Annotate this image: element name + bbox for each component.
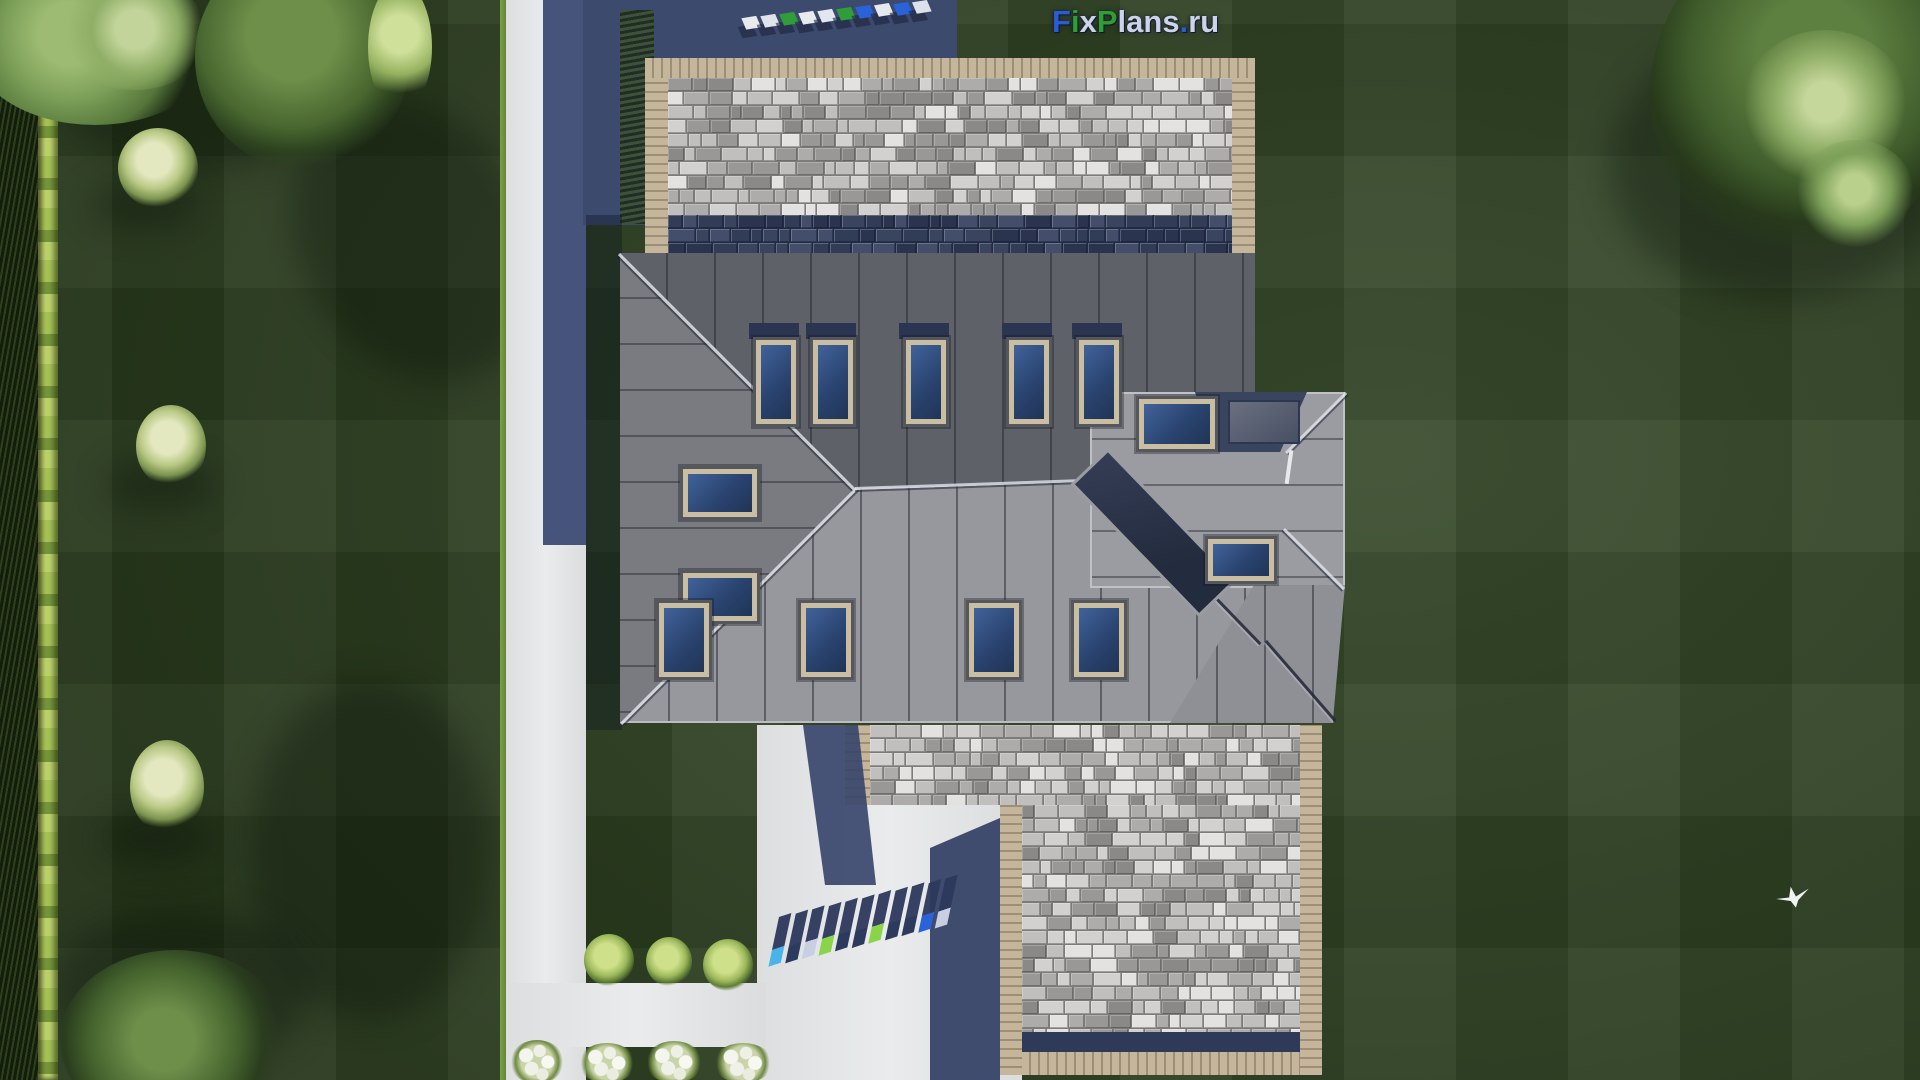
skylight-window bbox=[1006, 337, 1052, 427]
paver-tile bbox=[1227, 739, 1239, 752]
paver-tile bbox=[1180, 78, 1204, 91]
paver-tile bbox=[1005, 725, 1031, 738]
logo-letter: i bbox=[1071, 4, 1080, 39]
courtyard-pavers bbox=[870, 725, 1300, 805]
courtyard-pavers bbox=[668, 78, 1232, 215]
paver-tile bbox=[1061, 753, 1082, 766]
paver-tile bbox=[1035, 204, 1055, 215]
paver-tile bbox=[776, 243, 788, 253]
paver-tile bbox=[1221, 767, 1242, 780]
paver-tile bbox=[829, 215, 841, 228]
paver-tile bbox=[1091, 959, 1117, 972]
paver-tile bbox=[883, 215, 894, 228]
white-flower-bush-icon bbox=[578, 1043, 636, 1080]
skylight-window bbox=[680, 466, 760, 520]
paver-tile bbox=[1046, 767, 1065, 780]
paver-row bbox=[668, 204, 1232, 215]
paver-tile bbox=[1275, 833, 1289, 846]
paver-tile bbox=[909, 176, 925, 189]
paver-tile bbox=[785, 176, 812, 189]
paver-tile bbox=[989, 134, 1006, 147]
skylight-window bbox=[1205, 536, 1277, 584]
paver-row bbox=[870, 795, 1300, 805]
paver-tile bbox=[734, 78, 751, 91]
paver-tile bbox=[1137, 781, 1155, 794]
paver-tile bbox=[825, 162, 835, 175]
paver-tile bbox=[815, 148, 841, 161]
paver-tile bbox=[826, 106, 838, 119]
paver-tile bbox=[1274, 973, 1289, 986]
paver-tile bbox=[893, 795, 918, 805]
paver-tile bbox=[1251, 889, 1264, 902]
paver-tile bbox=[1206, 148, 1230, 161]
paver-tile bbox=[668, 243, 685, 253]
paver-tile bbox=[1204, 134, 1225, 147]
paver-tile bbox=[867, 106, 890, 119]
paver-tile bbox=[1086, 805, 1107, 818]
paver-tile bbox=[1069, 833, 1085, 846]
pale-bush-icon bbox=[136, 405, 206, 487]
paver-tile bbox=[1063, 847, 1076, 860]
paver-tile bbox=[1230, 945, 1243, 958]
courtyard-border bbox=[1022, 1052, 1300, 1075]
paver-tile bbox=[1129, 847, 1155, 860]
paver-tile bbox=[1091, 1001, 1107, 1014]
paver-tile bbox=[1041, 903, 1052, 916]
paver-tile bbox=[1169, 148, 1189, 161]
paver-tile bbox=[1132, 945, 1157, 958]
paver-tile bbox=[1208, 973, 1228, 986]
paver-tile bbox=[684, 92, 709, 105]
shaded-grass-strip bbox=[586, 215, 622, 730]
paver-tile bbox=[1074, 987, 1092, 1000]
paver-row bbox=[1022, 819, 1300, 832]
paver-tile bbox=[733, 92, 747, 105]
paver-tile bbox=[1036, 781, 1051, 794]
paver-tile bbox=[1092, 725, 1103, 738]
paver-tile bbox=[979, 243, 992, 253]
paver-tile bbox=[1045, 162, 1056, 175]
paver-tile bbox=[1240, 889, 1250, 902]
paver-tile bbox=[668, 162, 679, 175]
paver-tile bbox=[1189, 959, 1211, 972]
paver-tile bbox=[960, 781, 973, 794]
paver-tile bbox=[1173, 204, 1191, 215]
paver-tile bbox=[936, 781, 959, 794]
logo-letter: u bbox=[1200, 4, 1219, 39]
letter-block bbox=[836, 7, 856, 21]
skylight-window bbox=[798, 600, 854, 680]
paver-tile bbox=[804, 106, 825, 119]
paver-tile bbox=[1104, 931, 1127, 944]
paver-row bbox=[1022, 931, 1300, 944]
paver-tile bbox=[779, 229, 790, 242]
paver-row bbox=[1022, 973, 1300, 986]
paver-tile bbox=[688, 176, 706, 189]
courtyard-shadow-band bbox=[1022, 1032, 1300, 1052]
paver-tile bbox=[976, 162, 996, 175]
paver-tile bbox=[1224, 861, 1247, 874]
paver-tile bbox=[1007, 134, 1022, 147]
paver-tile bbox=[1267, 959, 1277, 972]
paver-tile bbox=[1162, 959, 1188, 972]
paver-row bbox=[668, 134, 1232, 147]
paver-tile bbox=[918, 162, 937, 175]
paver-tile bbox=[1293, 739, 1300, 752]
paver-tile bbox=[766, 215, 783, 228]
paver-tile bbox=[958, 725, 980, 738]
paver-tile bbox=[1059, 805, 1085, 818]
paver-tile bbox=[739, 190, 749, 203]
paver-tile bbox=[1228, 243, 1232, 253]
paver-tile bbox=[1225, 875, 1235, 888]
paver-tile bbox=[817, 204, 839, 215]
paver-tile bbox=[1278, 959, 1294, 972]
paver-tile bbox=[983, 739, 997, 752]
paver-tile bbox=[1185, 861, 1196, 874]
logo-letter: l bbox=[1118, 4, 1127, 39]
paver-tile bbox=[1210, 725, 1233, 738]
paver-tile bbox=[1115, 92, 1142, 105]
paver-tile bbox=[1088, 819, 1098, 832]
paver-tile bbox=[839, 106, 866, 119]
paver-tile bbox=[897, 148, 915, 161]
paver-tile bbox=[844, 78, 861, 91]
paver-tile bbox=[1168, 739, 1178, 752]
paver-tile bbox=[953, 767, 966, 780]
paver-tile bbox=[1083, 134, 1104, 147]
paver-tile bbox=[1255, 795, 1276, 805]
paver-tile bbox=[941, 215, 957, 228]
top-courtyard bbox=[645, 58, 1255, 253]
paver-tile bbox=[1133, 987, 1160, 1000]
paver-tile bbox=[1022, 903, 1040, 916]
paver-tile bbox=[1203, 739, 1226, 752]
paver-tile bbox=[1198, 875, 1224, 888]
paver-tile bbox=[1235, 1001, 1255, 1014]
paver-tile bbox=[1171, 753, 1184, 766]
paver-tile bbox=[968, 92, 984, 105]
paver-tile bbox=[1227, 889, 1239, 902]
letter-block bbox=[779, 12, 799, 26]
paver-tile bbox=[1150, 917, 1165, 930]
paver-tile bbox=[870, 176, 890, 189]
paver-row bbox=[668, 162, 1232, 175]
paver-tile bbox=[1290, 725, 1300, 738]
paver-tile bbox=[1087, 78, 1104, 91]
paver-tile bbox=[1172, 861, 1184, 874]
paver-tile bbox=[1281, 903, 1294, 916]
paver-tile bbox=[1047, 987, 1073, 1000]
paver-tile bbox=[693, 78, 707, 91]
paver-tile bbox=[866, 190, 890, 203]
paver-tile bbox=[1208, 162, 1232, 175]
paver-tile bbox=[1131, 805, 1146, 818]
paver-tile bbox=[1154, 78, 1179, 91]
paver-tile bbox=[1210, 847, 1236, 860]
paver-tile bbox=[933, 78, 944, 91]
paver-tile bbox=[881, 204, 908, 215]
paver-tile bbox=[830, 190, 840, 203]
paver-tile bbox=[1200, 833, 1225, 846]
paver-tile bbox=[1052, 215, 1076, 228]
paver-tile bbox=[1239, 959, 1254, 972]
paver-row bbox=[1022, 945, 1300, 958]
paver-tile bbox=[1253, 973, 1273, 986]
paver-tile bbox=[759, 134, 781, 147]
paver-tile bbox=[1009, 106, 1021, 119]
paver-tile bbox=[1263, 725, 1289, 738]
paver-tile bbox=[1270, 781, 1282, 794]
courtyard-border bbox=[1000, 805, 1022, 1075]
paver-tile bbox=[800, 92, 819, 105]
paver-tile bbox=[1200, 176, 1210, 189]
paver-tile bbox=[966, 148, 982, 161]
paver-tile bbox=[1219, 1001, 1234, 1014]
paver-tile bbox=[1280, 889, 1291, 902]
paver-tile bbox=[972, 204, 984, 215]
paver-tile bbox=[974, 781, 988, 794]
paver-tile bbox=[865, 134, 884, 147]
paver-row bbox=[1022, 903, 1300, 916]
paver-tile bbox=[744, 176, 771, 189]
paver-tile bbox=[1074, 148, 1090, 161]
paver-tile bbox=[1274, 819, 1297, 832]
paver-tile bbox=[1013, 92, 1035, 105]
paver-tile bbox=[738, 215, 765, 228]
paver-row bbox=[1022, 861, 1300, 874]
paver-tile bbox=[1108, 805, 1130, 818]
paver-tile bbox=[687, 120, 710, 133]
paver-tile bbox=[1151, 819, 1163, 832]
paver-tile bbox=[731, 106, 741, 119]
paver-tile bbox=[1201, 931, 1219, 944]
paver-tile bbox=[1268, 739, 1292, 752]
paver-tile bbox=[1164, 819, 1188, 832]
paver-tile bbox=[1065, 1001, 1090, 1014]
paver-tile bbox=[1107, 875, 1132, 888]
paver-tile bbox=[897, 725, 921, 738]
paver-tile bbox=[933, 795, 946, 805]
paver-tile bbox=[1277, 795, 1291, 805]
paver-tile bbox=[752, 78, 775, 91]
paver-tile bbox=[1021, 78, 1037, 91]
paver-tile bbox=[1162, 1001, 1185, 1014]
paver-tile bbox=[1077, 931, 1103, 944]
paver-tile bbox=[1147, 204, 1172, 215]
paver-tile bbox=[1041, 861, 1051, 874]
paver-tile bbox=[909, 204, 920, 215]
paver-tile bbox=[1228, 795, 1254, 805]
paver-tile bbox=[1036, 92, 1047, 105]
paver-tile bbox=[979, 176, 1000, 189]
paver-tile bbox=[1156, 903, 1170, 916]
paver-tile bbox=[782, 204, 805, 215]
paver-tile bbox=[1131, 819, 1150, 832]
paver-tile bbox=[1126, 215, 1153, 228]
paver-row bbox=[668, 176, 1232, 189]
paver-tile bbox=[1139, 959, 1161, 972]
paver-tile bbox=[803, 120, 813, 133]
paver-tile bbox=[1088, 917, 1106, 930]
paver-tile bbox=[1213, 781, 1225, 794]
paver-tile bbox=[1293, 875, 1300, 888]
paver-tile bbox=[1106, 229, 1119, 242]
skylight-glass bbox=[1014, 345, 1044, 419]
paver-tile bbox=[1179, 739, 1202, 752]
paver-tile bbox=[707, 106, 730, 119]
paver-tile bbox=[1152, 725, 1168, 738]
skylight-window bbox=[753, 337, 799, 427]
paver-tile bbox=[1173, 781, 1185, 794]
logo-letter: s bbox=[1162, 4, 1179, 39]
paver-tile bbox=[916, 148, 936, 161]
paver-tile bbox=[1169, 973, 1183, 986]
paver-tile bbox=[1080, 120, 1092, 133]
paver-tile bbox=[753, 162, 779, 175]
paver-tile bbox=[955, 739, 970, 752]
paver-tile bbox=[1008, 767, 1029, 780]
paver-tile bbox=[939, 243, 952, 253]
paver-tile bbox=[1133, 875, 1152, 888]
paver-tile bbox=[1144, 739, 1167, 752]
hedge-row bbox=[38, 0, 58, 1080]
lime-bush-icon bbox=[703, 939, 753, 991]
paver-tile bbox=[1216, 753, 1226, 766]
paver-row bbox=[668, 148, 1232, 161]
paver-tile bbox=[1153, 875, 1170, 888]
paver-tile bbox=[711, 120, 730, 133]
paver-tile bbox=[1008, 781, 1020, 794]
paver-tile bbox=[1141, 753, 1157, 766]
paver-tile bbox=[1158, 243, 1185, 253]
paver-tile bbox=[787, 190, 798, 203]
paver-tile bbox=[1133, 106, 1152, 119]
paver-tile bbox=[1120, 917, 1135, 930]
paver-tile bbox=[903, 229, 928, 242]
paver-tile bbox=[738, 243, 758, 253]
paver-tile bbox=[1204, 1015, 1226, 1028]
paver-tile bbox=[1290, 833, 1300, 846]
paver-row bbox=[1022, 987, 1300, 1000]
aerial-house-render: FixPlans.ru bbox=[0, 0, 1920, 1080]
paver-tile bbox=[840, 204, 858, 215]
paver-tile bbox=[668, 106, 693, 119]
paver-tile bbox=[1149, 973, 1168, 986]
paver-tile bbox=[1083, 753, 1105, 766]
paver-tile bbox=[1261, 861, 1287, 874]
paver-tile bbox=[926, 106, 945, 119]
paver-tile bbox=[1156, 795, 1176, 805]
paver-tile bbox=[1145, 795, 1155, 805]
paver-tile bbox=[710, 204, 736, 215]
paver-tile bbox=[959, 106, 970, 119]
paver-row bbox=[1022, 875, 1300, 888]
paver-tile bbox=[1030, 767, 1045, 780]
paver-tile bbox=[1169, 725, 1187, 738]
logo-letter: . bbox=[1180, 4, 1189, 39]
skylight-glass bbox=[974, 608, 1014, 672]
paver-tile bbox=[791, 229, 817, 242]
paver-tile bbox=[989, 781, 1007, 794]
paver-tile bbox=[979, 215, 997, 228]
paver-tile bbox=[1292, 795, 1300, 805]
paver-tile bbox=[1128, 120, 1143, 133]
paver-tile bbox=[708, 162, 727, 175]
paver-tile bbox=[842, 215, 865, 228]
paver-tile bbox=[870, 739, 885, 752]
paver-row bbox=[668, 243, 1232, 253]
paver-tile bbox=[698, 215, 723, 228]
paver-tile bbox=[1045, 243, 1062, 253]
paver-tile bbox=[1266, 917, 1278, 930]
paver-tile bbox=[1077, 847, 1097, 860]
paver-tile bbox=[1022, 931, 1047, 944]
paver-tile bbox=[1107, 917, 1119, 930]
paver-tile bbox=[1077, 229, 1088, 242]
paver-tile bbox=[1052, 781, 1068, 794]
paver-tile bbox=[1022, 1001, 1038, 1014]
white-flower-bush-icon bbox=[713, 1043, 773, 1080]
paver-tile bbox=[1196, 162, 1207, 175]
paver-tile bbox=[997, 162, 1019, 175]
walkway-horizontal bbox=[506, 983, 766, 1047]
paver-tile bbox=[993, 767, 1007, 780]
paver-tile bbox=[1164, 889, 1185, 902]
paver-tile bbox=[1225, 229, 1232, 242]
paver-tile bbox=[880, 92, 904, 105]
paver-tile bbox=[1117, 134, 1128, 147]
paver-tile bbox=[1130, 795, 1144, 805]
paver-tile bbox=[1022, 959, 1034, 972]
paver-tile bbox=[1118, 903, 1140, 916]
paver-tile bbox=[1138, 973, 1148, 986]
paver-tile bbox=[822, 134, 835, 147]
paver-tile bbox=[1100, 204, 1125, 215]
paver-tile bbox=[772, 176, 784, 189]
letter-block bbox=[817, 9, 837, 23]
paver-tile bbox=[1179, 987, 1190, 1000]
skylight-glass bbox=[1079, 608, 1119, 672]
paver-tile bbox=[838, 120, 848, 133]
paver-tile bbox=[1217, 795, 1227, 805]
paver-tile bbox=[911, 739, 925, 752]
paver-tile bbox=[689, 134, 701, 147]
paver-tile bbox=[870, 753, 893, 766]
paver-tile bbox=[1074, 162, 1086, 175]
paver-tile bbox=[1116, 861, 1134, 874]
paver-tile bbox=[1255, 959, 1266, 972]
paver-tile bbox=[958, 215, 978, 228]
paver-tile bbox=[1111, 781, 1136, 794]
paver-tile bbox=[954, 92, 967, 105]
paver-tile bbox=[710, 92, 732, 105]
paver-tile bbox=[1179, 162, 1195, 175]
paver-tile bbox=[852, 243, 872, 253]
paver-tile bbox=[926, 739, 941, 752]
paver-tile bbox=[668, 176, 687, 189]
paver-row bbox=[870, 725, 1300, 738]
paver-tile bbox=[1189, 917, 1209, 930]
paver-tile bbox=[1212, 987, 1234, 1000]
paver-tile bbox=[1067, 106, 1080, 119]
paver-tile bbox=[1044, 795, 1056, 805]
paver-row bbox=[1022, 833, 1300, 846]
paver-tile bbox=[1144, 889, 1163, 902]
paver-tile bbox=[1205, 243, 1227, 253]
paver-tile bbox=[885, 134, 904, 147]
paver-tile bbox=[1270, 1001, 1284, 1014]
